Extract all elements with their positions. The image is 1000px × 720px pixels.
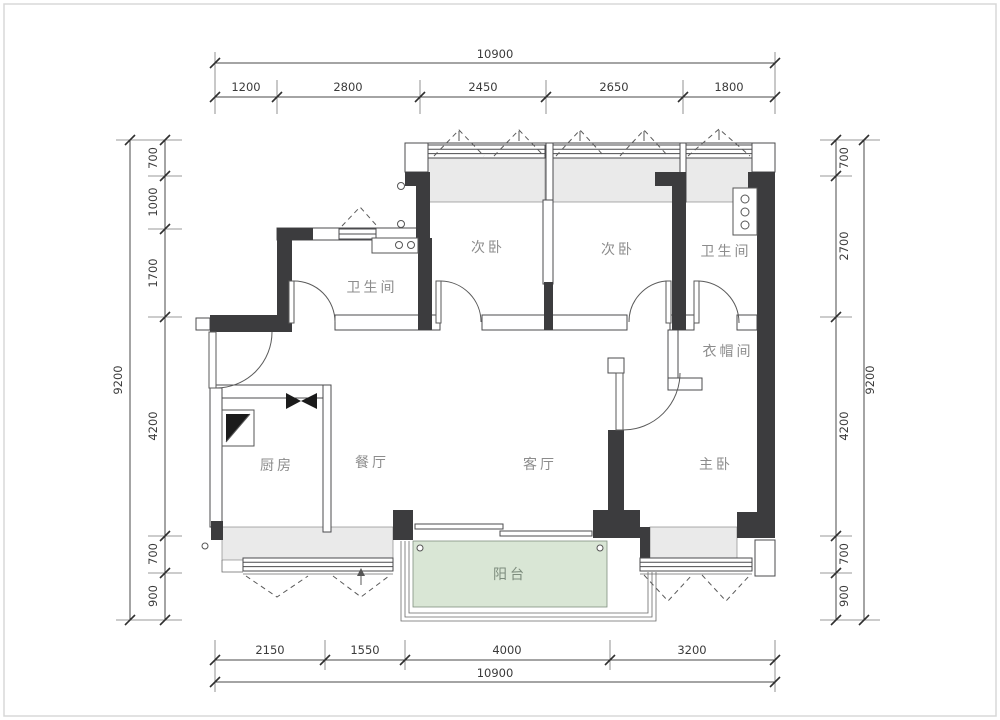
dim-right-seg: 700 (837, 147, 851, 169)
room-label-master: 主卧 (699, 457, 733, 473)
dim-right-seg: 4200 (837, 411, 851, 440)
dim-bottom-seg: 3200 (677, 643, 706, 657)
pipe-symbol (741, 195, 749, 203)
dim-top-seg: 1200 (231, 80, 260, 94)
dim-bottom-total: 10900 (477, 666, 514, 680)
bedroom-left-door-leaf (436, 281, 441, 323)
room-label-living: 客厅 (523, 456, 557, 473)
dim-top-seg: 2800 (333, 80, 362, 94)
room-label-balcony: 阳台 (493, 567, 527, 583)
room-label-kitchen: 厨房 (260, 458, 294, 474)
floor-plan-page: 卫生间 次卧 次卧 卫生间 衣帽间 厨房 餐厅 客厅 主卧 阳台 10900 1… (0, 0, 1000, 720)
entry-door-leaf (209, 332, 216, 388)
room-label-bathroom-left: 卫生间 (347, 280, 398, 296)
drain-symbol (202, 543, 208, 549)
dim-right-seg: 700 (837, 543, 851, 565)
pipe-symbol (741, 221, 749, 229)
dim-right-seg: 2700 (837, 231, 851, 260)
basin-symbol (396, 242, 403, 249)
dim-right-total: 9200 (863, 365, 877, 394)
pipe-symbol (741, 208, 749, 216)
dim-right-seg: 900 (837, 585, 851, 607)
bathroom-right-door-leaf (694, 281, 699, 323)
dim-left-seg: 700 (146, 543, 160, 565)
dim-left-total: 9200 (111, 365, 125, 394)
floor-plan-canvas: 卫生间 次卧 次卧 卫生间 衣帽间 厨房 餐厅 客厅 主卧 阳台 10900 1… (0, 0, 1000, 720)
dim-bottom-seg: 4000 (492, 643, 521, 657)
bedroom-middle-door-leaf (666, 281, 671, 323)
room-label-bedroom-middle: 次卧 (601, 242, 635, 258)
dim-left-seg: 700 (146, 147, 160, 169)
sliding-door-pane (415, 524, 503, 529)
drain-symbol (417, 545, 423, 551)
dim-bottom-seg: 2150 (255, 643, 284, 657)
pipe-symbol (398, 221, 405, 228)
room-label-closet: 衣帽间 (703, 344, 754, 360)
dim-top-seg: 2450 (468, 80, 497, 94)
master-door-leaf (616, 373, 623, 430)
dim-top-seg: 1800 (714, 80, 743, 94)
room-label-bathroom-right: 卫生间 (701, 244, 752, 260)
page-border (4, 4, 996, 716)
dim-top-total: 10900 (477, 47, 514, 61)
bathroom-left-door-leaf (289, 281, 294, 323)
dim-top-seg: 2650 (599, 80, 628, 94)
basin-symbol (408, 242, 415, 249)
room-label-bedroom-left: 次卧 (471, 240, 505, 256)
dim-left-seg: 4200 (146, 411, 160, 440)
drain-symbol (597, 545, 603, 551)
pipe-symbol (398, 183, 405, 190)
dim-left-seg: 1700 (146, 258, 160, 287)
dim-left-seg: 1000 (146, 187, 160, 216)
room-label-dining: 餐厅 (355, 455, 389, 471)
sliding-door-pane (500, 531, 592, 536)
dim-bottom-seg: 1550 (350, 643, 379, 657)
dim-left-seg: 900 (146, 585, 160, 607)
